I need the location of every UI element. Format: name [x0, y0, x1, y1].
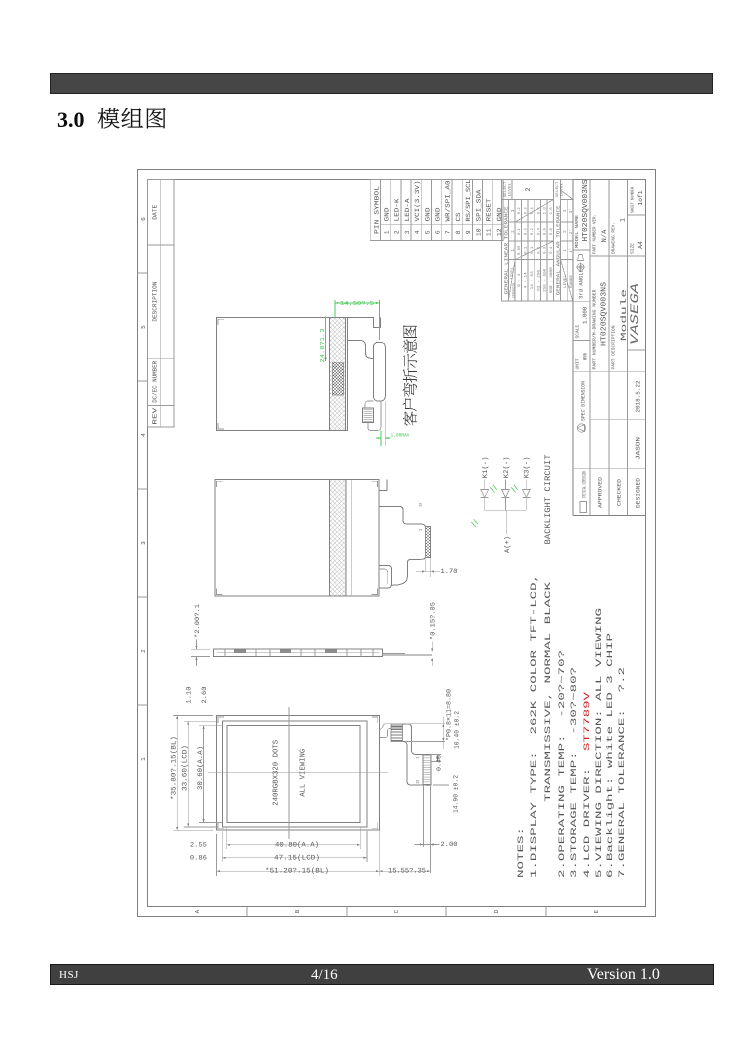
svg-text:GND: GND [384, 207, 391, 221]
svg-text:MODEL NAME: MODEL NAME [574, 215, 580, 248]
svg-text:APPROVED: APPROVED [598, 477, 604, 508]
svg-text:5: 5 [424, 230, 431, 234]
svg-text:DESCRIPTION: DESCRIPTION [152, 281, 159, 321]
svg-text:0.2: 0.2 [524, 227, 529, 235]
svg-text:0.2: 0.2 [517, 207, 522, 215]
svg-text:2.55: 2.55 [190, 841, 207, 848]
svg-text:A(+): A(+) [503, 536, 512, 553]
svg-text:K2(-): K2(-) [502, 456, 511, 478]
svg-text:0.86: 0.86 [190, 854, 207, 861]
svg-text:1: 1 [140, 757, 147, 761]
svg-text:RS/SPI_SCL: RS/SPI_SCL [465, 179, 472, 221]
svg-text:240RGBX320 DOTS: 240RGBX320 DOTS [272, 739, 280, 806]
svg-text:11: 11 [486, 228, 493, 236]
svg-text:2: 2 [394, 230, 401, 234]
svg-text:14 - 63: 14 - 63 [530, 271, 535, 290]
svg-text:47.15(LCD): 47.15(LCD) [274, 853, 320, 862]
svg-text:LED-A: LED-A [404, 198, 411, 221]
svg-text:4.LCD DRIVER:: 4.LCD DRIVER: [583, 751, 592, 878]
svg-text:VASEGA: VASEGA [629, 283, 642, 345]
svg-text:SPEC DIMENSION: SPEC DIMENSION [580, 381, 586, 421]
svg-text:2.OPERATING TEMP: -20?~70?: 2.OPERATING TEMP: -20?~70? [558, 650, 567, 878]
svg-text:8: 8 [455, 230, 462, 234]
svg-text:1: 1 [563, 249, 568, 252]
svg-text:*0.15?.05: *0.15?.05 [430, 602, 437, 640]
svg-text:4: 4 [140, 433, 147, 437]
svg-text:SCALE: SCALE [575, 324, 581, 338]
svg-text:0.3: 0.3 [543, 246, 548, 254]
svg-text:REV: REV [152, 407, 159, 424]
svg-text:1of1: 1of1 [637, 190, 644, 205]
svg-text:BACKLIGHT CIRCUIT: BACKLIGHT CIRCUIT [543, 455, 553, 545]
svg-text:0.2: 0.2 [524, 207, 529, 215]
svg-text:14.50?.5: 14.50?.5 [340, 300, 374, 307]
svg-text:*P0.8×11=8.80: *P0.8×11=8.80 [446, 689, 453, 741]
svg-text:GND: GND [424, 207, 431, 221]
svg-text:1: 1 [620, 218, 628, 222]
svg-text:NOTES:: NOTES: [517, 827, 526, 878]
svg-text:3: 3 [511, 209, 516, 212]
svg-text:DESIGNED: DESIGNED [635, 478, 641, 508]
svg-text:0.40: 0.40 [435, 755, 442, 771]
svg-text:9: 9 [465, 230, 472, 234]
svg-text:33.60(LCD): 33.60(LCD) [181, 745, 190, 791]
svg-text:6: 6 [140, 217, 147, 221]
svg-text:A: A [194, 909, 201, 913]
svg-text:6: 6 [435, 230, 442, 234]
svg-text:Module: Module [620, 289, 629, 341]
svg-text:LED-K: LED-K [394, 198, 401, 221]
svg-text:6.Backlight: white LED 3 CHIP: 6.Backlight: white LED 3 CHIP [606, 633, 615, 878]
svg-text:3: 3 [404, 230, 411, 234]
svg-text:5.VIEWING DIRECTION: ALL VIEWI: 5.VIEWING DIRECTION: ALL VIEWING [595, 608, 604, 878]
svg-text:1.70: 1.70 [441, 568, 458, 575]
svg-text:E: E [593, 909, 600, 913]
svg-text:K3(-): K3(-) [523, 456, 532, 478]
svg-text:0.1: 0.1 [524, 246, 529, 254]
svg-text:A4: A4 [637, 241, 644, 249]
svg-text:GENERAL LINEAR TOLERANCE: GENERAL LINEAR TOLERANCE [503, 206, 509, 294]
svg-text:0.1: 0.1 [517, 227, 522, 235]
svg-text:1: 1 [384, 230, 391, 234]
svg-text:1: 1 [511, 249, 516, 252]
svg-text:K1(-): K1(-) [481, 456, 490, 478]
svg-text:SPI_SDA: SPI_SDA [475, 189, 482, 221]
svg-text:5: 5 [140, 325, 147, 329]
svg-text:PIN SYMBOL: PIN SYMBOL [373, 186, 380, 234]
svg-text:PART NUMBER VER.: PART NUMBER VER. [592, 214, 598, 254]
svg-text:10: 10 [475, 228, 482, 236]
svg-text:DIMENSION: DIMENSION [512, 283, 517, 298]
svg-text:2018.5.22: 2018.5.22 [634, 381, 641, 413]
svg-text:3.0: 3.0 [57, 108, 85, 132]
svg-text:HT020SQV003NS: HT020SQV003NS [581, 179, 590, 241]
svg-text:24.8?1.3: 24.8?1.3 [319, 328, 326, 362]
svg-text:2: 2 [525, 187, 533, 191]
svg-text:2: 2 [563, 230, 568, 233]
svg-text:4 - 14: 4 - 14 [524, 272, 529, 289]
svg-text:0.2: 0.2 [530, 227, 535, 235]
svg-text:40.80(A.A): 40.80(A.A) [275, 840, 319, 849]
svg-text:30.60(A.A): 30.60(A.A) [196, 746, 205, 790]
svg-text:*35.80?.15(BL): *35.80?.15(BL) [170, 736, 179, 800]
svg-text:ALL VIEWING: ALL VIEWING [300, 749, 308, 797]
svg-text:0 - 4: 0 - 4 [517, 273, 522, 287]
svg-text:SELECT: SELECT [555, 181, 560, 198]
svg-text:TRANSMISSIVE, NORMAL BLACK: TRANSMISSIVE, NORMAL BLACK [544, 582, 553, 878]
svg-text:4: 4 [414, 230, 421, 234]
svg-text:*51.20?.15(BL): *51.20?.15(BL) [265, 867, 329, 876]
svg-text:0.6: 0.6 [543, 227, 548, 235]
svg-text:CS: CS [455, 212, 462, 221]
svg-text:3: 3 [563, 209, 568, 212]
svg-text:*2.00?.1: *2.00?.1 [194, 604, 201, 638]
svg-text:12: 12 [419, 503, 424, 507]
svg-text:JASON: JASON [634, 437, 641, 460]
svg-text:D: D [493, 909, 500, 913]
svg-text:LEVEL: LEVEL [559, 182, 564, 197]
svg-text:SELECT: SELECT [503, 181, 508, 198]
svg-text:7.GENERAL TOLERANCE: ?.2: 7.GENERAL TOLERANCE: ?.2 [618, 667, 627, 878]
svg-text:RESET: RESET [486, 198, 493, 221]
svg-text:DRAWING REV.: DRAWING REV. [611, 222, 617, 254]
svg-text:1.DISPLAY TYPE: 262K COLOR TF: 1.DISPLAY TYPE: 262K COLOR TFT-LCD, [530, 574, 539, 878]
svg-text:2: 2 [140, 649, 147, 653]
svg-text:GENERAL ANGULAR TOLERANCE: GENERAL ANGULAR TOLERANCE [556, 205, 562, 295]
svg-text:12: 12 [416, 780, 421, 784]
svg-text:DATE: DATE [152, 204, 159, 219]
svg-text:1: 1 [419, 529, 424, 531]
svg-text:10.40 ±0.2: 10.40 ±0.2 [454, 711, 461, 749]
svg-text:PART NUMBER/M-DRAWING NUMBER: PART NUMBER/M-DRAWING NUMBER [592, 289, 598, 369]
svg-text:1.00MAX: 1.00MAX [391, 432, 410, 438]
svg-text:B: B [294, 909, 301, 913]
svg-text:GND: GND [435, 207, 442, 221]
svg-text:2.60: 2.60 [201, 686, 208, 703]
svg-text:HT020SQV003NS: HT020SQV003NS [600, 282, 609, 346]
svg-text:C: C [393, 909, 400, 913]
svg-text:N/A: N/A [600, 229, 609, 242]
svg-text:0.4: 0.4 [536, 227, 541, 235]
svg-text:ST7789V: ST7789V [583, 692, 592, 751]
svg-text:VCI(3.3V): VCI(3.3V) [414, 181, 421, 222]
svg-text:DC/EC NUMBER: DC/EC NUMBER [152, 361, 159, 403]
svg-text:SHEET NUMBER: SHEET NUMBER [631, 187, 636, 213]
svg-text:3.STORAGE TEMP: -30?~80?: 3.STORAGE TEMP: -30?~80? [570, 667, 579, 878]
svg-text:WR/SPI_A0: WR/SPI_A0 [445, 180, 452, 221]
svg-text:SIZE: SIZE [630, 243, 636, 254]
svg-text:7: 7 [445, 230, 452, 234]
svg-text:2: 2 [511, 230, 516, 233]
svg-text:PART DESCRIPTION: PART DESCRIPTION [611, 325, 617, 369]
svg-text:1.000: 1.000 [582, 306, 589, 324]
svg-text:mm: mm [582, 353, 589, 360]
svg-text:3: 3 [140, 541, 147, 545]
svg-text:UNIT: UNIT [575, 358, 581, 369]
svg-text:1: 1 [416, 756, 421, 758]
svg-text:3rd ANGLE: 3rd ANGLE [579, 269, 585, 299]
svg-text:CRITICAL DIMENSION: CRITICAL DIMENSION [581, 471, 587, 498]
svg-text:2.00: 2.00 [441, 841, 458, 848]
svg-text:14.90 ±0.2: 14.90 ±0.2 [453, 775, 460, 813]
svg-text:LEVEL: LEVEL [509, 267, 514, 279]
svg-text:63 - 250: 63 - 250 [536, 269, 541, 291]
svg-text:1.10: 1.10 [186, 686, 193, 703]
svg-text:CHECKED: CHECKED [616, 479, 622, 506]
svg-text:250 - 600: 250 - 600 [543, 268, 548, 292]
svg-text:0.05: 0.05 [517, 245, 522, 255]
svg-text:1.0: 1.0 [543, 207, 548, 215]
svg-text:15.55?.35: 15.55?.35 [388, 868, 426, 876]
